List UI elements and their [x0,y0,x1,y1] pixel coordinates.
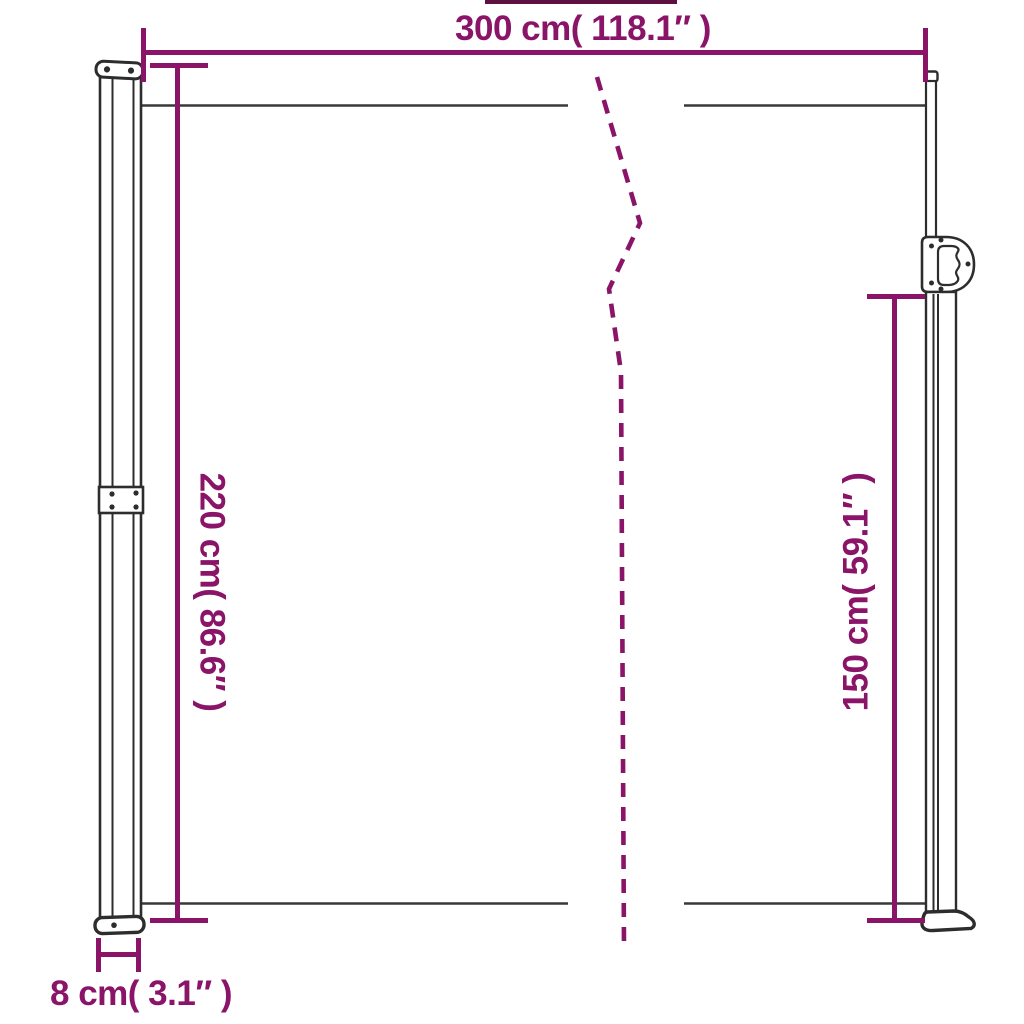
left-post [95,61,145,934]
height-dimension-label: 220 cm( 86.6″ ) [195,473,230,712]
left-post-base [95,916,145,934]
right-post [922,72,974,931]
right-post-base [922,911,974,931]
left-post-mid-bracket [99,487,143,513]
fold-dashed-line [597,77,640,949]
width-dimension-label: 300 cm( 118.1″ ) [455,11,711,46]
right-height-dimension-label: 150 cm( 59.1″ ) [839,473,874,712]
top-edge-artifact [485,0,677,4]
handle [922,237,974,292]
dimension-diagram: 300 cm( 118.1″ ) 220 cm( 86.6″ ) 150 cm(… [0,0,1024,1024]
dim-right-height [867,296,925,921]
dim-post-width [96,938,141,972]
left-post-top-bracket [96,61,144,79]
post-width-dimension-label: 8 cm( 3.1″ ) [50,976,232,1011]
